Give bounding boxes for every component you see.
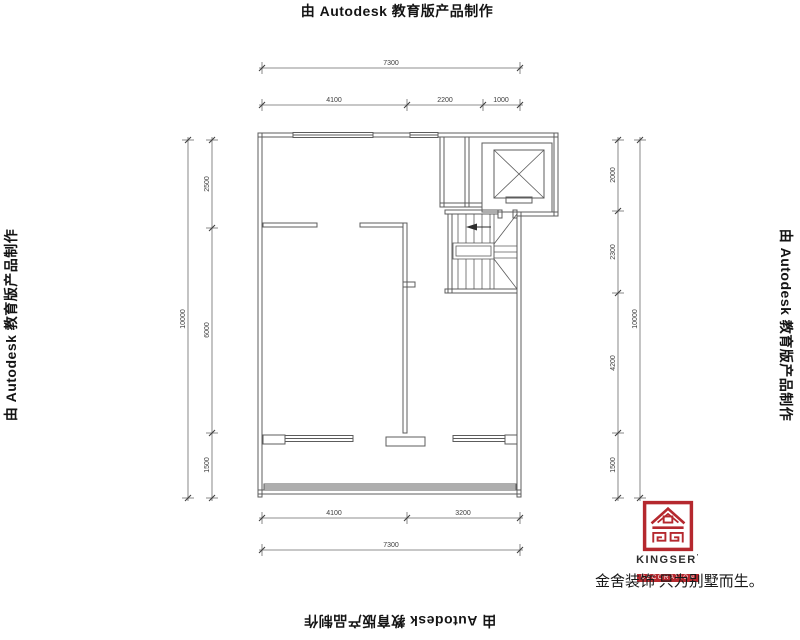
stair-bottom-wall [445,289,517,293]
duct-right-wall [465,137,469,207]
left-wall [258,133,262,497]
upper-right-wall [554,133,558,216]
duct-left-wall [440,137,444,207]
windows [264,133,516,491]
dim-label: 2300 [610,244,617,260]
window-bottom-left [285,436,353,442]
watermark-bottom: 由 Autodesk 教育版产品制作 [304,611,497,631]
dim-left-segments: 2500 6000 1500 [204,137,218,501]
stub-wall-left [263,223,317,227]
kingser-logo-icon [642,500,694,552]
stair-landing [453,243,494,259]
dim-label: 4100 [326,510,342,517]
elevator-shaft [482,143,552,212]
middle-wall-jog [403,282,415,287]
stair-treads-lower [458,259,490,289]
dim-label: 10000 [632,309,639,329]
dim-label: 1500 [610,457,617,473]
dim-label: 4200 [610,355,617,371]
middle-wall [403,223,407,433]
balcony-stub-right [505,435,517,444]
logo-brand-text: KINGSER [636,554,697,566]
window-top-right [410,133,438,138]
window-top-left [293,133,373,138]
dim-bottom-overall: 7300 [259,542,523,556]
dim-label: 1500 [204,457,211,473]
watermark-top: 由 Autodesk 教育版产品制作 [301,1,494,21]
middle-wall-cap [386,437,425,446]
stair-winders [494,214,517,289]
dim-right-overall: 10000 [632,137,646,501]
staircase [445,210,517,293]
outer-walls [258,133,558,497]
stair-left-wall [448,214,452,293]
logo-brand-mark: ’ [697,554,700,560]
step-wall [517,212,558,216]
dim-label: 7300 [383,60,399,67]
duct-bottom-wall [440,203,482,207]
logo-tagline: 金舍装饰 只为别墅而生。 [595,570,740,591]
stair-direction-arrow [466,224,491,231]
watermark-right: 由 Autodesk 教育版产品制作 [776,229,796,422]
watermark-left: 由 Autodesk 教育版产品制作 [1,229,21,422]
dim-label: 2000 [610,167,617,183]
dim-left-overall: 10000 [180,137,194,501]
right-wall [517,212,521,497]
dim-label: 3200 [455,510,471,517]
drawing-canvas: 由 Autodesk 教育版产品制作 由 Autodesk 教育版产品制作 由 … [0,0,800,640]
interior-walls [263,137,517,446]
dim-label: 7300 [383,542,399,549]
dim-label: 1000 [493,97,509,104]
stub-wall-right [360,223,403,227]
bottom-wall [258,490,521,494]
dim-label: 2500 [204,176,211,192]
dim-right-segments: 2000 2300 4200 1500 [610,137,624,501]
balcony-stub-left [263,435,285,444]
dim-label: 10000 [180,309,187,329]
dim-label: 4100 [326,97,342,104]
stair-door-stub-left [498,210,502,218]
window-bottom-right [453,436,505,442]
dim-bottom-segments: 4100 3200 [259,510,523,524]
dim-label: 2200 [437,97,453,104]
dim-top-segments: 4100 2200 1000 [259,97,523,111]
logo-brand: KINGSER’ [620,554,716,566]
dim-top-overall: 7300 [259,60,523,74]
elevator [482,143,552,212]
dim-label: 6000 [204,322,211,338]
balcony-window [264,484,516,490]
